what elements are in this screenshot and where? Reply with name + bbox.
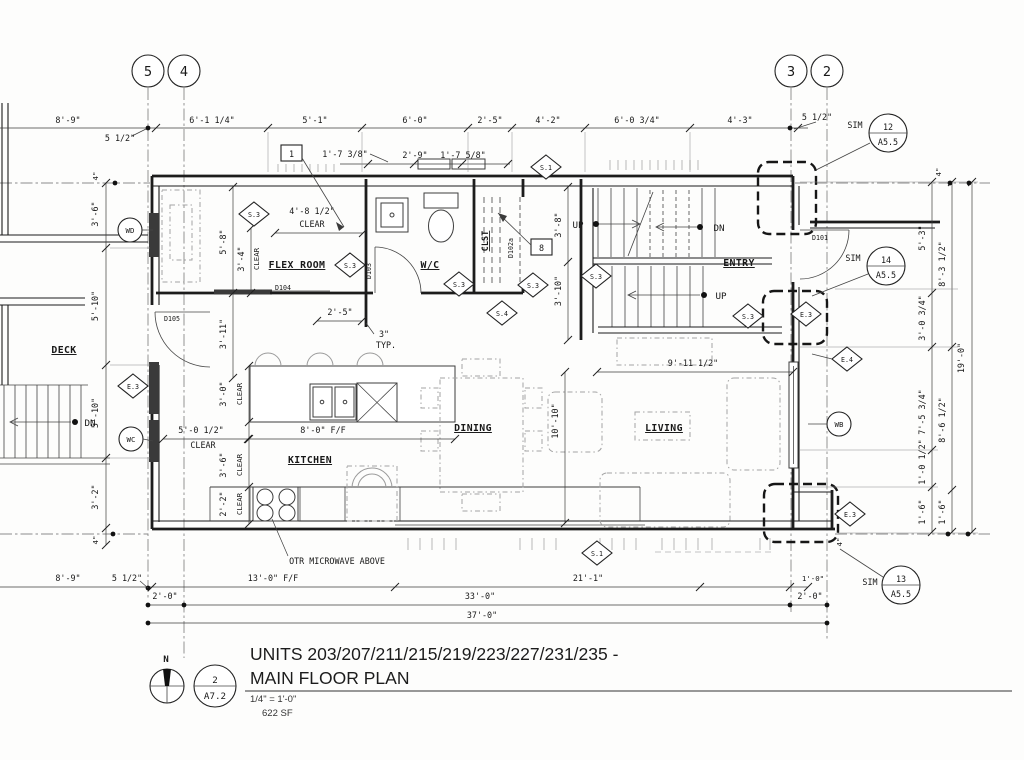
dim-3-6: 3'-6" — [218, 452, 228, 477]
dim-right2-1: 8'-6 1/2" — [937, 397, 947, 442]
stair-dn-label: DN — [713, 223, 724, 234]
door-tag-d103: D103 — [365, 263, 373, 279]
deck-lines — [0, 103, 148, 385]
grid-bubble-4: 4 — [180, 65, 188, 80]
dim-island-ff: 8'-0" F/F — [300, 425, 345, 435]
dim-right3: 19'-0" — [956, 343, 966, 373]
keynote-s1-top: S.1 — [540, 164, 552, 172]
door-tag-d101: D101 — [812, 234, 828, 242]
keynote-s3-1: S.3 — [248, 211, 260, 219]
dim-left-2: 5'-10" — [90, 291, 100, 321]
sheet-title-line2: MAIN FLOOR PLAN — [250, 668, 409, 688]
walls — [149, 176, 940, 529]
detail-14-sheet: A5.5 — [876, 270, 896, 280]
dim-bottomleft-1: 5 1/2" — [112, 573, 142, 583]
dim-top2-2: 1'-7 5/8" — [440, 150, 485, 160]
note-clear-2: CLEAR — [252, 247, 261, 270]
door-tag-d104: D104 — [275, 284, 291, 292]
sheet-scale: 1/4" = 1'-0" — [250, 694, 296, 705]
dim-left-4: 3'-2" — [90, 484, 100, 509]
dim-right-4top: 4" — [934, 168, 943, 177]
titleblock-sheet-ref: A7.2 — [204, 691, 226, 702]
callout-1: 1 — [289, 149, 294, 159]
dim-flex-width: 4'-8 1/2" — [289, 206, 334, 216]
room-label-deck: DECK — [51, 345, 76, 356]
detail-12-sheet: A5.5 — [878, 137, 898, 147]
room-label-clst: CLST — [481, 231, 491, 252]
dim-top-2: 6'-1 1/4" — [189, 115, 234, 125]
detail-12-sim: SIM — [847, 120, 862, 130]
dim-3-4: 3'-4" — [236, 246, 246, 271]
dim-living-height: 10'-10" — [550, 403, 560, 438]
note-typ: TYP. — [376, 340, 396, 350]
dim-top-4: 6'-0" — [402, 115, 427, 125]
north-label: N — [163, 654, 169, 665]
tag-wd: WD — [126, 226, 135, 235]
title-block: UNITS 203/207/211/215/219/223/227/231/23… — [150, 644, 1012, 719]
dim-top-5: 2'-5" — [477, 115, 502, 125]
dim-flex-height: 5'-8" — [218, 229, 228, 254]
detail-14-sim: SIM — [845, 253, 860, 263]
dim-3-0: 3'-0" — [218, 381, 228, 406]
grid-bubbles: 5 4 3 2 — [132, 55, 843, 87]
floor-plan-drawing: 5 4 3 2 — [0, 0, 1024, 760]
dim-right1-4: 1'-6" — [917, 499, 927, 524]
keynote-s3-2: S.3 — [344, 262, 356, 270]
dim-top-6: 4'-2" — [535, 115, 560, 125]
dim-entry-width: 9'-11 1/2" — [668, 358, 718, 368]
dim-right2-0: 8'-3 1/2" — [937, 241, 947, 286]
room-label-wc: W/C — [421, 260, 440, 271]
room-label-flex: FLEX ROOM — [269, 260, 326, 271]
detail-13-sim: SIM — [862, 577, 877, 587]
note-clear-4: CLEAR — [235, 382, 244, 405]
keynote-s3-4: S.3 — [527, 282, 539, 290]
detail-12-number: 12 — [883, 122, 893, 132]
room-label-dining: DINING — [454, 423, 492, 434]
dim-right1-0: 5'-3" — [917, 225, 927, 250]
keynote-e3-2: E.3 — [800, 311, 812, 319]
dim-left-1: 3'-6" — [90, 201, 100, 226]
dimension-lines — [0, 122, 978, 625]
keynote-s3-5: S.3 — [590, 273, 602, 281]
dim-bottom2-1: 33'-0" — [465, 591, 495, 601]
keynote-s1-bottom: S.1 — [591, 550, 603, 558]
dim-text-top: 8'-9" 5 1/2" 6'-1 1/4" 5'-1" 6'-0" 2'-5"… — [55, 112, 832, 160]
detail-14-number: 14 — [881, 255, 891, 265]
dim-3-10: 3'-10" — [553, 276, 563, 306]
grid-bubble-5: 5 — [144, 65, 152, 80]
keynote-diamonds: S.1 S.1 S.3 S.3 S.3 S.3 S.3 S.3 S.4 E.3 … — [118, 155, 865, 565]
dim-bottom1-1: 21'-1" — [573, 573, 603, 583]
keynote-s4: S.4 — [496, 310, 508, 318]
grid-bubble-2: 2 — [823, 65, 831, 80]
dim-3-8: 3'-8" — [553, 212, 563, 237]
dim-bottom1-2: 1'-0" — [802, 574, 824, 583]
dim-right1-1: 3'-0 3/4" — [917, 295, 927, 340]
note-otr-microwave: OTR MICROWAVE ABOVE — [289, 556, 385, 566]
north-arrow: N — [150, 654, 184, 703]
deck-dn-label: DN — [84, 418, 95, 429]
dim-bottomleft-0: 8'-9" — [55, 573, 80, 583]
keynote-e3-3: E.3 — [844, 511, 856, 519]
keynote-s3-3: S.3 — [453, 281, 465, 289]
keynote-e3-1: E.3 — [127, 383, 139, 391]
stair-up-label-2: UP — [715, 291, 727, 302]
dim-top2-0: 1'-7 3/8" — [322, 149, 367, 159]
floor-plan-sheet: 5 4 3 2 — [0, 0, 1024, 760]
callout-8: 8 — [539, 243, 544, 253]
dim-bottom2-2: 2'-0" — [797, 591, 822, 601]
stair-up-label-1: UP — [572, 220, 584, 231]
detail-region-boxes — [758, 162, 838, 542]
room-label-living: LIVING — [645, 423, 683, 434]
sheet-area: 622 SF — [262, 708, 293, 719]
room-label-kitchen: KITCHEN — [288, 455, 332, 466]
grid-lines — [0, 88, 990, 658]
dim-right-4bot: 4" — [835, 538, 844, 547]
titleblock-detail-number: 2 — [212, 675, 218, 686]
dim-text-left: 4" 3'-6" 5'-10" 5'-10" 3'-2" 4" — [90, 172, 100, 545]
dim-top-9: 5 1/2" — [802, 112, 832, 122]
detail-13-number: 13 — [896, 574, 906, 584]
note-clear-1: CLEAR — [299, 219, 325, 229]
door-tag-d105: D105 — [164, 315, 180, 323]
fixtures — [210, 193, 640, 521]
siding-hatches — [278, 159, 775, 552]
note-clear-5: CLEAR — [235, 453, 244, 476]
dim-kitchen-clear: 5'-0 1/2" — [178, 425, 223, 435]
detail-13-sheet: A5.5 — [891, 589, 911, 599]
note-clear-3: CLEAR — [190, 440, 216, 450]
dim-top-7: 6'-0 3/4" — [614, 115, 659, 125]
door-tag-d102a: D102a — [507, 238, 515, 258]
note-3in: 3" — [379, 329, 389, 339]
dim-right1-2: 7'-5 3/4" — [917, 389, 927, 434]
dim-2-5: 2'-5" — [327, 307, 352, 317]
dim-top-1: 5 1/2" — [105, 133, 135, 143]
dim-2-2: 2'-2" — [218, 491, 228, 516]
dim-left-0: 4" — [91, 172, 100, 181]
dim-3-11: 3'-11" — [218, 319, 228, 349]
keynote-s3-6: S.3 — [742, 313, 754, 321]
dim-top2-1: 2'-9" — [402, 150, 427, 160]
dim-top-8: 4'-3" — [727, 115, 752, 125]
detail-callouts: 12 A5.5 SIM 14 A5.5 SIM 13 A5.5 SIM — [812, 114, 920, 604]
dim-right2-2: 1'-6" — [937, 499, 947, 524]
dim-bottom3: 37'-0" — [467, 610, 497, 620]
dim-top-0: 8'-9" — [55, 115, 80, 125]
dim-right1-3: 1'-0 1/2" — [917, 439, 927, 484]
room-label-entry: ENTRY — [723, 258, 755, 269]
dim-top-3: 5'-1" — [302, 115, 327, 125]
keynote-e4: E.4 — [841, 356, 853, 364]
tag-wc: WC — [127, 435, 136, 444]
note-clear-6: CLEAR — [235, 492, 244, 515]
tag-wb: WB — [835, 420, 844, 429]
sheet-title-line1: UNITS 203/207/211/215/219/223/227/231/23… — [250, 644, 619, 664]
dim-left-5: 4" — [91, 536, 100, 545]
dim-bottom1-0: 13'-0" F/F — [248, 573, 298, 583]
dim-bottom2-0: 2'-0" — [152, 591, 177, 601]
grid-bubble-3: 3 — [787, 65, 795, 80]
dim-text-bottom: 8'-9" 5 1/2" 13'-0" F/F 21'-1" 1'-0" 2'-… — [55, 573, 824, 620]
